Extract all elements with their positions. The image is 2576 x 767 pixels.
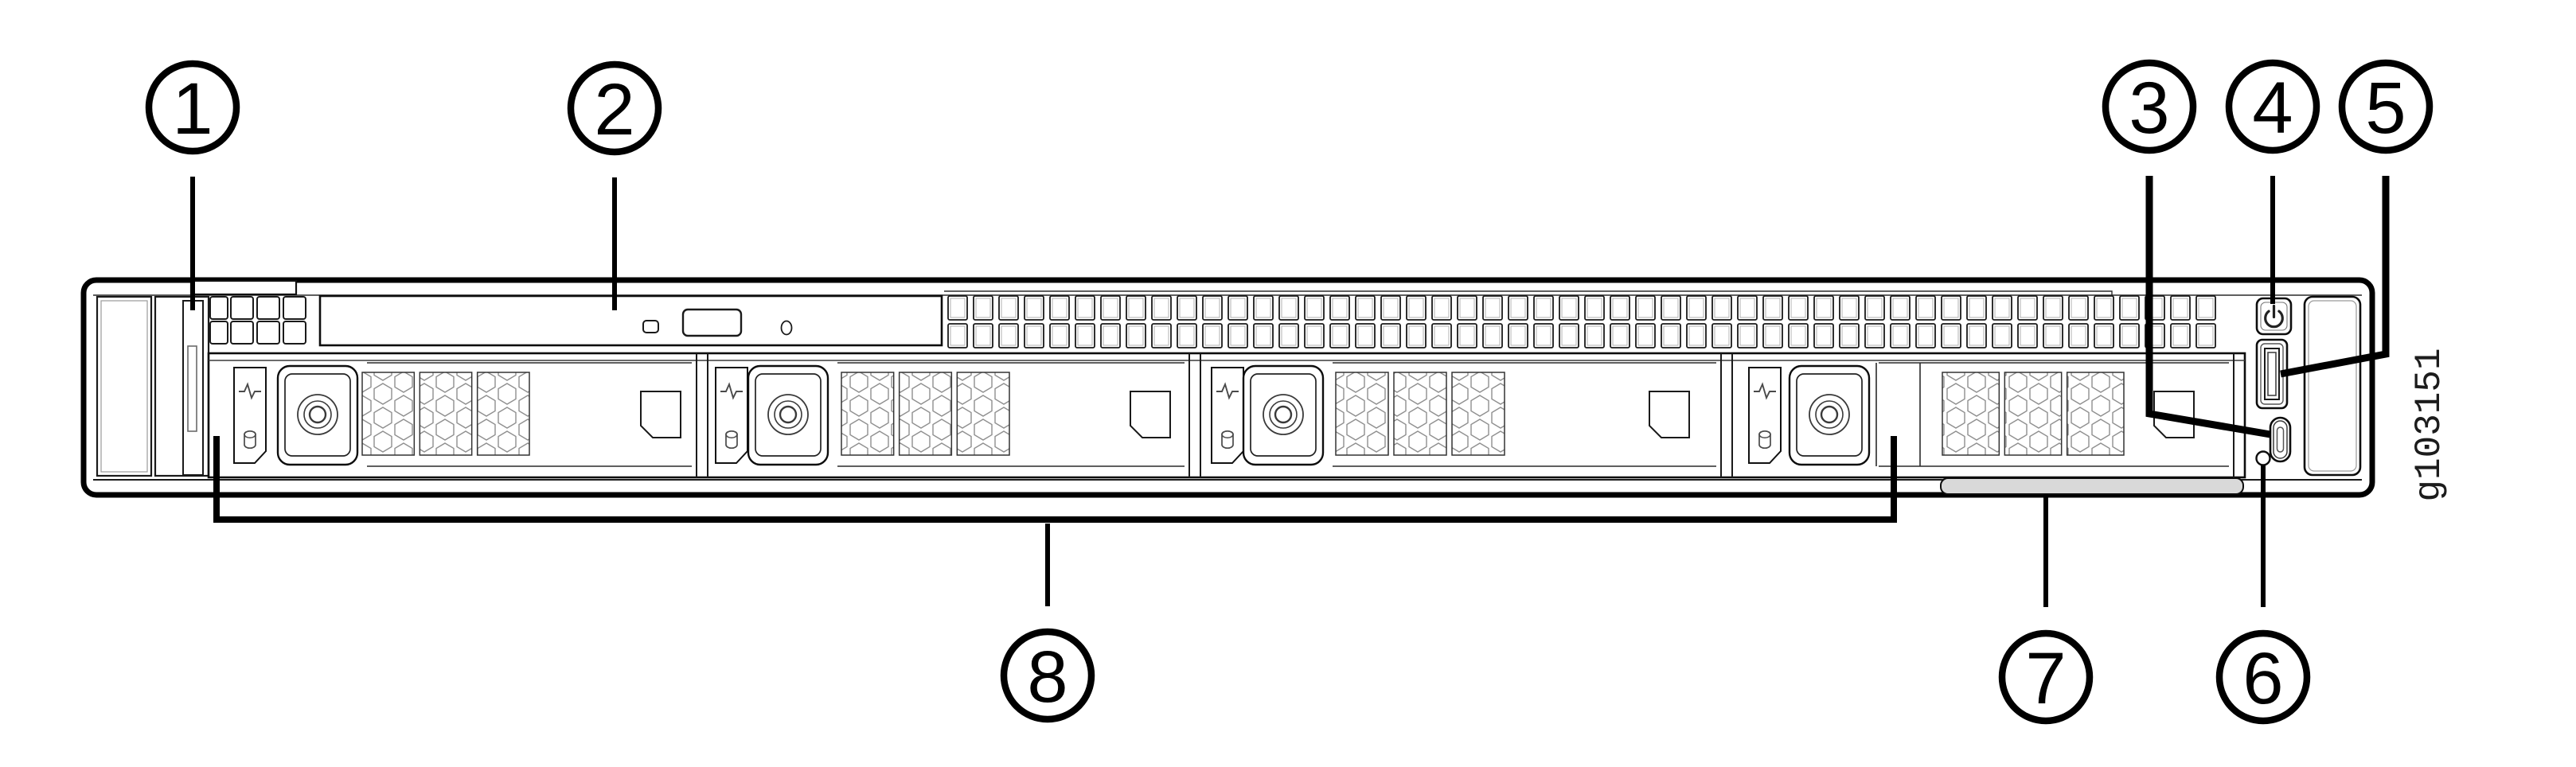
drive-honeycomb-vent — [1336, 372, 1388, 455]
callout-4: 4 — [2229, 63, 2316, 150]
vent-hole — [1942, 324, 1961, 348]
vent-hole — [2196, 296, 2215, 320]
vent-hole — [1865, 296, 1884, 320]
vent-hole — [1407, 324, 1426, 348]
vent-hole — [1891, 324, 1910, 348]
optical-drive-led — [643, 321, 658, 333]
vent-hole — [1814, 324, 1833, 348]
vent-hole — [1509, 324, 1528, 348]
left-control-panel-slot — [188, 346, 197, 431]
vent-hole — [1432, 296, 1451, 320]
vent-hole — [1687, 296, 1706, 320]
optical-drive-eject-button — [683, 310, 741, 336]
vent-hole — [1967, 296, 1986, 320]
indicator-led — [2257, 452, 2270, 465]
callout-1: 1 — [149, 64, 236, 151]
vent-hole — [2196, 324, 2215, 348]
vent-hole — [1279, 324, 1298, 348]
vent-hole — [2018, 296, 2037, 320]
figure-graphic-id: g103151 — [2409, 348, 2450, 501]
vent-hole — [1254, 296, 1273, 320]
vent-hole — [1789, 324, 1808, 348]
vent-hole — [1916, 324, 1935, 348]
vent-hole — [948, 324, 967, 348]
vent-hole — [1228, 296, 1247, 320]
vent-hole — [1356, 296, 1375, 320]
vent-hole — [231, 297, 253, 319]
drive-honeycomb-vent — [2004, 372, 2061, 455]
vent-hole — [1177, 296, 1196, 320]
vent-hole — [1254, 324, 1273, 348]
vent-hole — [1432, 324, 1451, 348]
vent-hole — [1126, 296, 1146, 320]
vent-hole — [1738, 324, 1757, 348]
right-rack-ear — [2305, 297, 2360, 475]
drive-honeycomb-vent — [1942, 372, 1999, 455]
vent-hole — [1789, 296, 1808, 320]
vent-hole — [1661, 324, 1680, 348]
callout-4-number: 4 — [2252, 68, 2293, 149]
vent-hole — [1075, 296, 1095, 320]
callout-7: 7 — [2002, 633, 2090, 721]
chassis-top-left-lip — [191, 281, 296, 294]
drive-end-plate — [1649, 391, 1689, 438]
drive-honeycomb-vent — [841, 372, 894, 455]
vent-hole — [231, 321, 253, 344]
optical-drive — [320, 296, 942, 345]
vent-hole — [1025, 296, 1044, 320]
vent-hole — [1585, 296, 1604, 320]
callout-6-number: 6 — [2242, 638, 2283, 719]
callout-8-number: 8 — [1027, 637, 1067, 718]
pull-out-asset-tag — [1941, 478, 2243, 494]
usb-c-port — [2270, 418, 2290, 461]
callout-2: 2 — [571, 64, 658, 152]
vent-hole — [2069, 296, 2088, 320]
vent-hole — [974, 296, 993, 320]
vent-hole — [1152, 324, 1171, 348]
vent-hole — [2094, 324, 2113, 348]
vent-hole — [1992, 324, 2012, 348]
drive-honeycomb-vent — [362, 372, 414, 455]
vent-hole — [999, 296, 1018, 320]
vent-hole — [974, 324, 993, 348]
vent-hole — [2018, 324, 2037, 348]
left-rack-ear — [97, 297, 151, 476]
callout-2-number: 2 — [594, 69, 634, 150]
callout-3-number: 3 — [2129, 68, 2169, 149]
vent-hole — [2171, 296, 2190, 320]
drive-honeycomb-vent — [2067, 372, 2124, 455]
vent-hole — [1712, 296, 1731, 320]
vent-hole — [257, 297, 279, 319]
vent-hole — [1381, 296, 1400, 320]
vent-hole — [1025, 324, 1044, 348]
vent-hole — [1101, 296, 1120, 320]
vent-hole — [1712, 324, 1731, 348]
vent-hole — [1356, 324, 1375, 348]
drive-end-plate — [1130, 391, 1170, 438]
vent-hole — [1585, 324, 1604, 348]
vent-hole — [1942, 296, 1961, 320]
vent-hole — [1738, 296, 1757, 320]
vent-hole — [1840, 296, 1859, 320]
vent-hole — [1636, 296, 1655, 320]
vent-hole — [1228, 324, 1247, 348]
drive-release-knob-plate — [755, 374, 821, 456]
vent-hole — [283, 297, 306, 319]
vent-hole — [1534, 296, 1553, 320]
vent-hole — [2043, 296, 2063, 320]
vent-hole — [1203, 296, 1222, 320]
vent-hole — [1636, 324, 1655, 348]
vent-hole — [2171, 324, 2190, 348]
vent-hole — [2069, 324, 2088, 348]
vent-hole — [2043, 324, 2063, 348]
callout-5-number: 5 — [2365, 68, 2406, 149]
server-front-panel-diagram: 12345678 g103151 — [0, 0, 2576, 767]
vent-hole — [1814, 296, 1833, 320]
drive-honeycomb-vent — [478, 372, 529, 455]
vent-hole — [1891, 296, 1910, 320]
vent-hole — [1967, 324, 1986, 348]
vent-hole — [1509, 296, 1528, 320]
vent-hole — [1279, 296, 1298, 320]
vent-hole — [1330, 296, 1349, 320]
vent-hole — [210, 297, 228, 319]
vent-hole — [1661, 296, 1680, 320]
vent-hole — [1916, 296, 1935, 320]
vent-hole — [1203, 324, 1222, 348]
vent-hole — [1050, 324, 1069, 348]
vent-hole — [1075, 324, 1095, 348]
vent-hole — [1330, 324, 1349, 348]
vent-hole — [1152, 296, 1171, 320]
vent-hole — [1305, 324, 1324, 348]
callout-3: 3 — [2106, 63, 2193, 150]
callout-7-number: 7 — [2025, 638, 2066, 719]
drive-release-knob-plate — [1797, 374, 1862, 456]
vent-hole — [1407, 296, 1426, 320]
optical-drive-bezel — [320, 296, 942, 345]
left-control-panel — [155, 297, 209, 476]
callout-6: 6 — [2219, 633, 2307, 721]
vent-hole — [1763, 296, 1782, 320]
vent-hole — [1840, 324, 1859, 348]
vent-hole — [1126, 324, 1146, 348]
vent-hole — [2120, 324, 2139, 348]
drive-honeycomb-vent — [957, 372, 1009, 455]
vent-hole — [1559, 296, 1579, 320]
vent-hole — [1458, 324, 1477, 348]
chassis — [84, 280, 2372, 495]
vent-hole — [1050, 296, 1069, 320]
drive-end-plate — [641, 391, 681, 438]
vent-hole — [1559, 324, 1579, 348]
vent-hole — [2094, 296, 2113, 320]
drive-honeycomb-vent — [900, 372, 952, 455]
vent-hole — [283, 321, 306, 344]
vent-hole — [1458, 296, 1477, 320]
vent-hole — [1483, 296, 1502, 320]
optical-drive-emergency-eject-hole — [782, 321, 792, 335]
vent-hole — [1483, 324, 1502, 348]
vent-hole — [1610, 296, 1630, 320]
vent-hole — [1865, 324, 1884, 348]
right-ear-panel — [2305, 297, 2360, 475]
vent-hole — [1101, 324, 1120, 348]
drive-release-knob-plate — [1251, 374, 1316, 456]
vent-hole — [1381, 324, 1400, 348]
callout-1-number: 1 — [172, 68, 213, 150]
callout-5: 5 — [2342, 63, 2430, 150]
drive-bay-region — [209, 353, 2245, 477]
vent-hole — [1763, 324, 1782, 348]
vent-hole — [210, 321, 228, 344]
drive-honeycomb-vent — [1452, 372, 1505, 455]
diagram-stage: 12345678 g103151 — [0, 0, 2576, 767]
left-ear-panel — [97, 297, 151, 476]
vent-hole — [1305, 296, 1324, 320]
vent-hole — [257, 321, 279, 344]
vent-hole — [1177, 324, 1196, 348]
vent-hole — [1992, 296, 2012, 320]
vent-hole — [948, 296, 967, 320]
vent-hole — [1534, 324, 1553, 348]
vent-hole — [999, 324, 1018, 348]
vent-hole — [1610, 324, 1630, 348]
drive-honeycomb-vent — [420, 372, 471, 455]
vent-hole — [1687, 324, 1706, 348]
callout-8: 8 — [1004, 632, 1091, 719]
drive-honeycomb-vent — [1394, 372, 1446, 455]
drive-release-knob-plate — [285, 374, 350, 456]
vent-hole — [2120, 296, 2139, 320]
